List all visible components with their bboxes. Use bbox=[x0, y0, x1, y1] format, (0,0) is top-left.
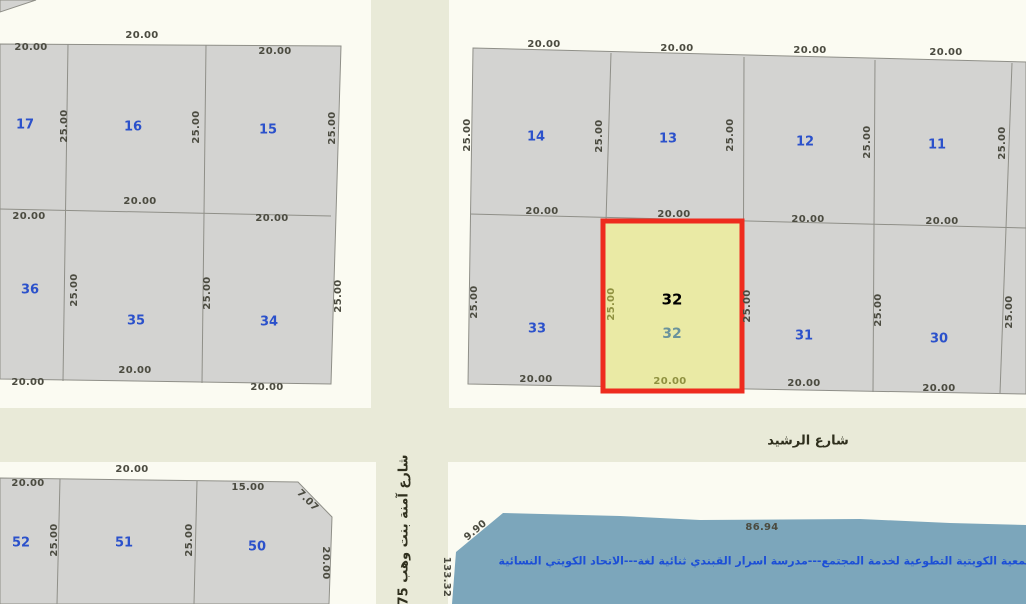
dimension-label: 20.00 bbox=[11, 479, 44, 489]
street-name: شارع الرشيد bbox=[767, 435, 849, 448]
dimension-label: 25.00 bbox=[863, 125, 873, 158]
dimension-label: 20.00 bbox=[14, 43, 47, 53]
parcel-number-30: 30 bbox=[930, 333, 948, 346]
parcel-number-16: 16 bbox=[124, 121, 142, 134]
dimension-label: 20.00 bbox=[793, 46, 826, 56]
dimension-label: 20.00 bbox=[118, 366, 151, 376]
parcel-number-36: 36 bbox=[21, 284, 39, 297]
dimension-label: 15.00 bbox=[231, 483, 264, 493]
parcel-number-34: 34 bbox=[260, 316, 278, 329]
dimension-label: 20.00 bbox=[115, 465, 148, 475]
dimension-label: 86.94 bbox=[745, 523, 778, 533]
dimension-label: 20.00 bbox=[125, 31, 158, 41]
dimension-label: 20.00 bbox=[320, 546, 330, 579]
parcel-number-35: 35 bbox=[127, 315, 145, 328]
dimension-label: 25.00 bbox=[203, 276, 213, 309]
parcel-number-33: 33 bbox=[528, 323, 546, 336]
dimension-label: 20.00 bbox=[525, 207, 558, 217]
dimension-label: 20.00 bbox=[527, 40, 560, 50]
dimension-label: 25.00 bbox=[874, 293, 884, 326]
dimension-label: 20.00 bbox=[925, 217, 958, 227]
dimension-label: 20.00 bbox=[123, 197, 156, 207]
dimension-label: 25.00 bbox=[60, 109, 70, 142]
dimension-label: 20.00 bbox=[660, 44, 693, 54]
parcel-number-51: 51 bbox=[115, 537, 133, 550]
dimension-label: 20.00 bbox=[11, 378, 44, 388]
dimension-label: 20.00 bbox=[12, 212, 45, 222]
dimension-label: 25.00 bbox=[463, 118, 473, 151]
selected-parcel-subnumber: 32 bbox=[662, 327, 681, 341]
dimension-label: 133.32 bbox=[441, 557, 451, 597]
dimension-label: 25.00 bbox=[185, 523, 195, 556]
dimension-label: 25.00 bbox=[607, 287, 617, 320]
dimension-label: 25.00 bbox=[50, 523, 60, 556]
dimension-label: 25.00 bbox=[726, 118, 736, 151]
dimension-label: 9.90 bbox=[463, 519, 489, 543]
dimension-label: 20.00 bbox=[922, 384, 955, 394]
dimension-label: 25.00 bbox=[595, 119, 605, 152]
parcel-number-15: 15 bbox=[259, 124, 277, 137]
dimension-label: 20.00 bbox=[255, 214, 288, 224]
street-name: شارع آمنة بنت وهب 75 bbox=[398, 455, 411, 604]
parcel-number-12: 12 bbox=[796, 136, 814, 149]
dimension-label: 25.00 bbox=[328, 111, 338, 144]
dimension-label: 25.00 bbox=[70, 273, 80, 306]
dimension-label: 20.00 bbox=[929, 48, 962, 58]
dimension-label: 20.00 bbox=[657, 210, 690, 220]
dimension-label: 25.00 bbox=[334, 279, 344, 312]
dimension-label: 25.00 bbox=[192, 110, 202, 143]
dimension-label: 20.00 bbox=[787, 379, 820, 389]
map-viewport[interactable]: 20.0020.0020.0025.0025.0025.0017161520.0… bbox=[0, 0, 1026, 604]
parcel-number-52: 52 bbox=[12, 537, 30, 550]
selected-parcel-number: 32 bbox=[662, 293, 683, 308]
dimension-label: 25.00 bbox=[743, 289, 753, 322]
parcel-number-11: 11 bbox=[928, 139, 946, 152]
dimension-label: 25.00 bbox=[998, 126, 1008, 159]
map-labels-layer: 20.0020.0020.0025.0025.0025.0017161520.0… bbox=[0, 0, 1026, 604]
dimension-label: 25.00 bbox=[1005, 295, 1015, 328]
dimension-label: 25.00 bbox=[470, 285, 480, 318]
parcel-number-50: 50 bbox=[248, 541, 266, 554]
facility-label: الجمعية الكويتية التطوعية لخدمة المجتمع-… bbox=[499, 556, 1026, 567]
parcel-number-31: 31 bbox=[795, 330, 813, 343]
dimension-label: 20.00 bbox=[653, 377, 686, 387]
parcel-number-14: 14 bbox=[527, 131, 545, 144]
dimension-label: 20.00 bbox=[519, 375, 552, 385]
dimension-label: 20.00 bbox=[250, 383, 283, 393]
dimension-label: 20.00 bbox=[791, 215, 824, 225]
dimension-label: 7.07 bbox=[294, 488, 319, 513]
parcel-number-17: 17 bbox=[16, 119, 34, 132]
parcel-number-13: 13 bbox=[659, 133, 677, 146]
dimension-label: 20.00 bbox=[258, 47, 291, 57]
